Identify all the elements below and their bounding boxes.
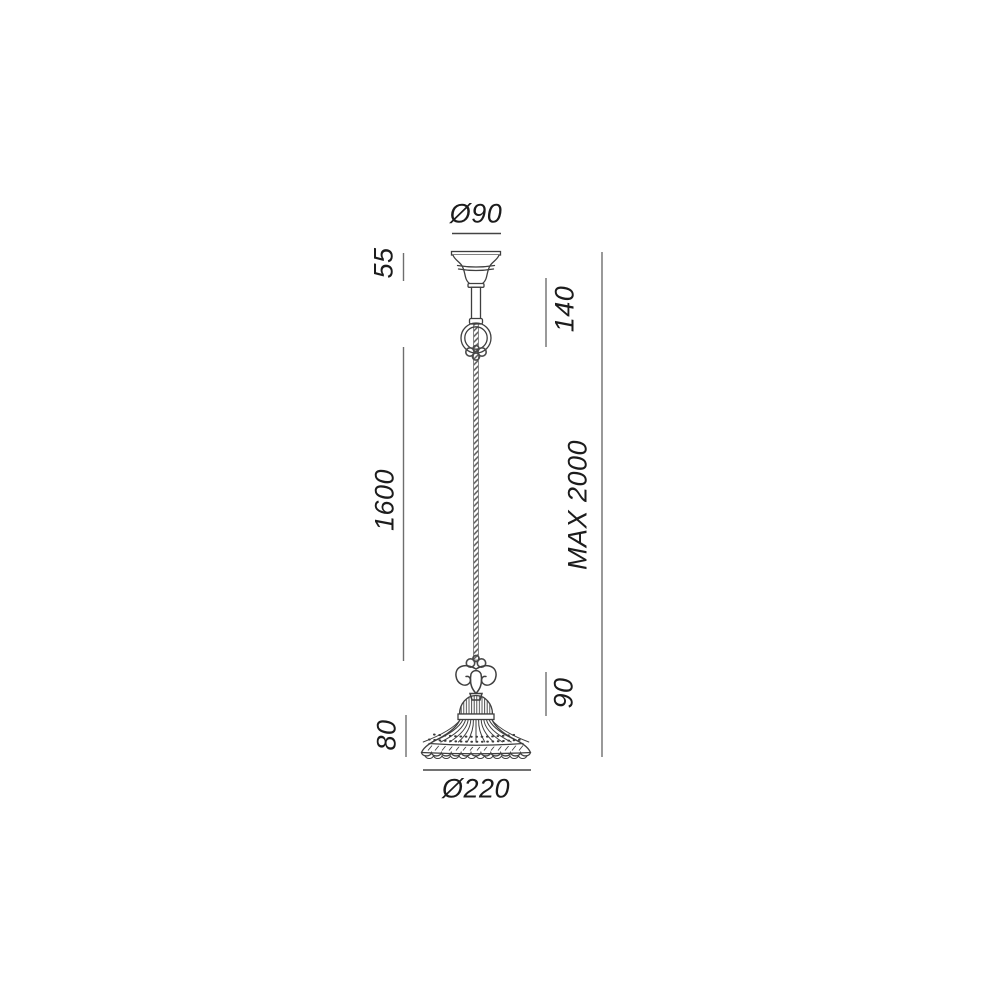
shade-ribs [423,720,529,743]
shade-holder-dome [458,696,494,720]
shade-scallop-inner-edge [425,756,527,759]
dim-label-canopy-diameter: Ø90 [450,199,503,230]
technical-drawing-canvas: Ø90 55 140 1600 MAX 2000 90 80 Ø220 [0,0,1000,1000]
decorative-scroll-hook [456,655,496,700]
dim-label-shade-diameter: Ø220 [442,774,510,805]
pendant-lamp-drawing [0,0,1000,1000]
dim-label-holder-height: 90 [549,677,580,708]
dim-label-canopy-height: 55 [369,247,400,278]
canopy-stem [470,287,483,324]
dim-label-cable-length: 1600 [370,469,401,531]
lamp-shade [422,720,531,759]
ceiling-canopy [452,252,501,288]
dim-label-max-drop: MAX 2000 [563,440,594,570]
dim-label-shade-height: 80 [372,719,403,750]
dim-label-top-section-height: 140 [550,286,581,333]
suspension-cable [474,322,479,660]
